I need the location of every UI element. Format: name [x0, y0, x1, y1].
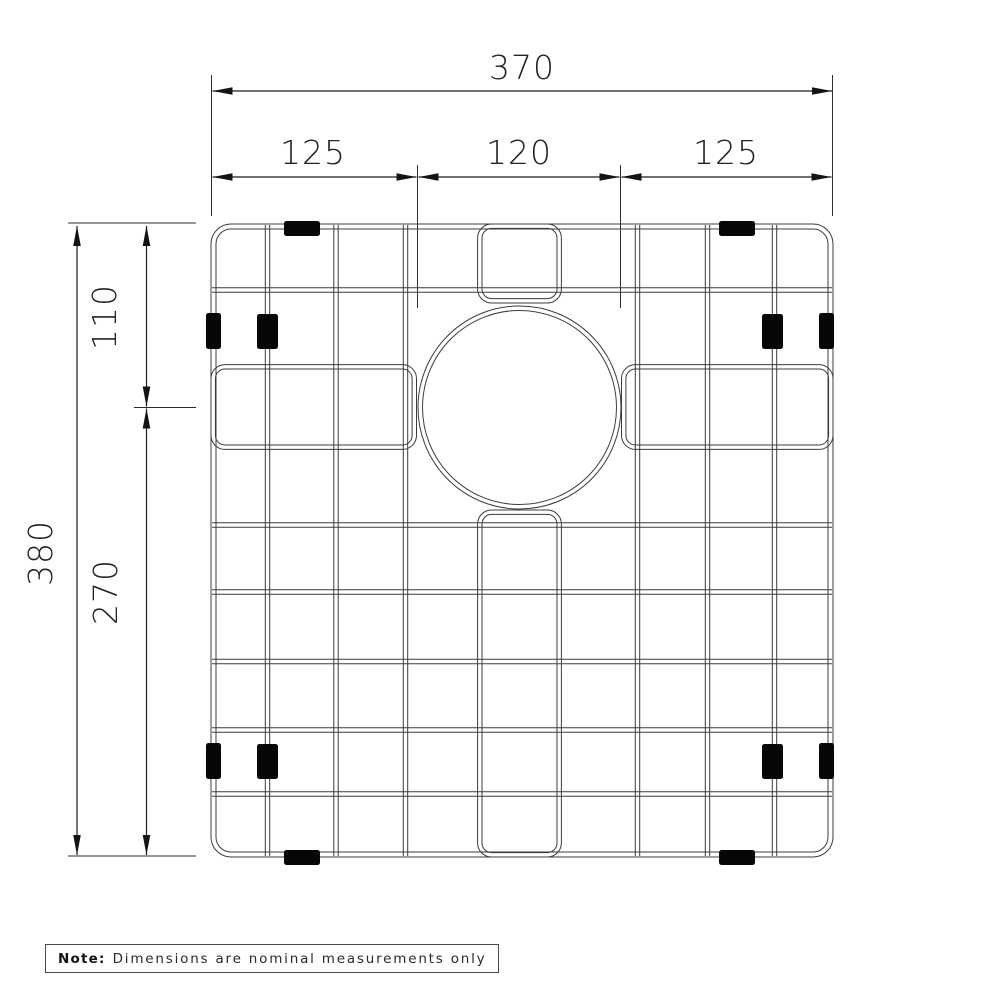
- dimension-arrowhead: [622, 173, 642, 181]
- dimension-lines-layer: [73, 87, 832, 855]
- bottom-pocket-inner: [482, 514, 557, 852]
- left-pocket-inner: [215, 369, 412, 445]
- note-label: Note:: [58, 951, 106, 967]
- rubber-foot: [719, 850, 755, 865]
- rubber-foot: [257, 314, 278, 349]
- dimension-arrowhead: [419, 173, 439, 181]
- dim-label-overall-height: 380: [21, 520, 60, 586]
- dimension-arrowhead: [397, 173, 417, 181]
- rubber-foot: [719, 221, 755, 236]
- left-pocket-outer: [211, 365, 417, 450]
- dimension-arrowhead: [812, 87, 832, 95]
- dimension-arrowhead: [213, 87, 233, 95]
- dim-label-segment-center: 120: [486, 133, 552, 172]
- note-box: Note: Dimensions are nominal measurement…: [45, 944, 499, 973]
- dimension-arrowhead: [143, 226, 151, 246]
- frame-outer: [211, 224, 833, 857]
- dimension-arrowhead: [73, 835, 81, 855]
- dimension-arrowhead: [213, 173, 233, 181]
- right-pocket-inner: [626, 369, 829, 445]
- rubber-foot: [762, 314, 783, 349]
- rubber-foot: [257, 744, 278, 779]
- rubber-foot: [284, 850, 320, 865]
- drain-hole-inner-circle: [423, 311, 617, 505]
- grid-wires-layer: [211, 224, 833, 857]
- dim-label-segment-left: 125: [280, 133, 346, 172]
- rubber-foot: [762, 744, 783, 779]
- drain-hole-outer-circle: [418, 306, 621, 509]
- dimension-arrowhead: [143, 409, 151, 429]
- frame-inner: [216, 229, 828, 852]
- rubber-foot: [206, 743, 221, 779]
- dim-label-segment-right: 125: [693, 133, 759, 172]
- dimension-arrowhead: [143, 835, 151, 855]
- extension-lines-layer: [68, 75, 833, 856]
- dim-label-bottom-offset: 270: [86, 559, 125, 625]
- note-text: Dimensions are nominal measurements only: [113, 951, 487, 967]
- bottom-pocket-outer: [478, 510, 562, 857]
- technical-drawing: 370 125 120 125 380 110 270: [0, 0, 1000, 1000]
- dimension-arrowhead: [73, 226, 81, 246]
- top-pocket-outer: [478, 224, 562, 303]
- dim-label-top-offset: 110: [85, 284, 124, 350]
- page: { "title": "Sink grid technical drawing"…: [0, 0, 1000, 1000]
- dimension-labels-layer: 370 125 120 125 380 110 270: [21, 48, 759, 625]
- rubber-foot: [819, 313, 834, 349]
- rubber-feet-layer: [206, 221, 834, 865]
- rubber-foot: [284, 221, 320, 236]
- rubber-foot: [819, 743, 834, 779]
- right-pocket-outer: [622, 365, 834, 450]
- drain-hole-ring: [418, 306, 621, 509]
- rubber-foot: [206, 313, 221, 349]
- dimension-arrowhead: [143, 387, 151, 407]
- dimension-arrowhead: [812, 173, 832, 181]
- dim-label-overall-width: 370: [489, 48, 555, 87]
- dimension-arrowhead: [600, 173, 620, 181]
